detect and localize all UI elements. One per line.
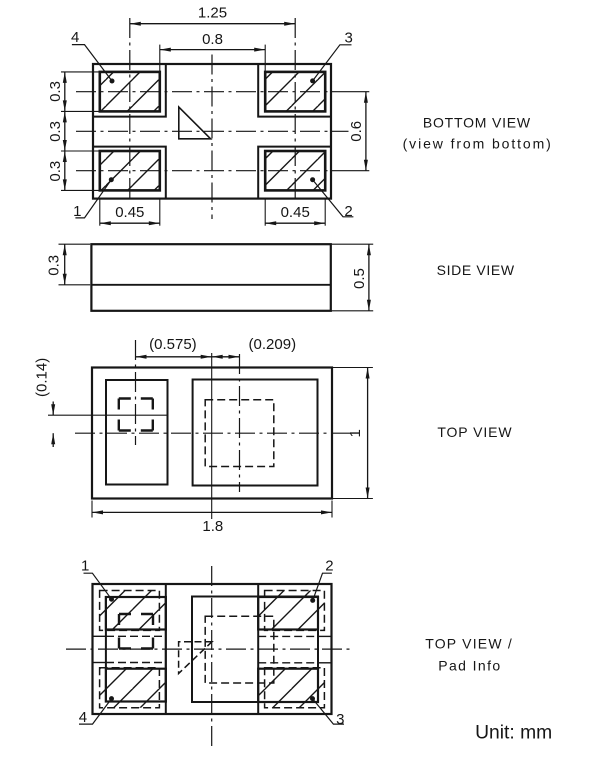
svg-text:3: 3	[345, 30, 353, 47]
svg-text:0.3: 0.3	[47, 161, 64, 182]
svg-text:(0.575): (0.575)	[149, 336, 197, 353]
svg-text:0.45: 0.45	[281, 204, 310, 221]
svg-text:0.6: 0.6	[348, 121, 365, 142]
svg-text:(0.14): (0.14)	[34, 358, 51, 397]
svg-text:(view from bottom): (view from bottom)	[403, 135, 553, 151]
svg-text:0.5: 0.5	[351, 268, 368, 289]
svg-text:TOP VIEW /: TOP VIEW /	[425, 636, 513, 652]
svg-text:Unit: mm: Unit: mm	[475, 722, 552, 743]
svg-text:0.3: 0.3	[45, 255, 62, 276]
svg-text:1: 1	[73, 203, 81, 220]
svg-text:2: 2	[325, 557, 333, 574]
svg-text:0.45: 0.45	[115, 204, 144, 221]
svg-text:1.8: 1.8	[202, 518, 223, 535]
svg-text:0.8: 0.8	[202, 31, 223, 48]
svg-text:1: 1	[347, 429, 364, 437]
svg-text:SIDE VIEW: SIDE VIEW	[437, 262, 515, 278]
svg-text:TOP VIEW: TOP VIEW	[437, 424, 512, 440]
svg-text:4: 4	[71, 29, 79, 46]
svg-text:0.3: 0.3	[47, 81, 64, 102]
svg-text:0.3: 0.3	[47, 121, 64, 142]
svg-text:(0.209): (0.209)	[249, 336, 297, 353]
svg-text:1: 1	[81, 557, 89, 574]
svg-text:Pad Info: Pad Info	[438, 658, 501, 674]
svg-text:BOTTOM VIEW: BOTTOM VIEW	[423, 115, 531, 131]
svg-text:3: 3	[336, 711, 344, 728]
svg-text:4: 4	[79, 709, 87, 726]
svg-text:1.25: 1.25	[198, 4, 227, 21]
